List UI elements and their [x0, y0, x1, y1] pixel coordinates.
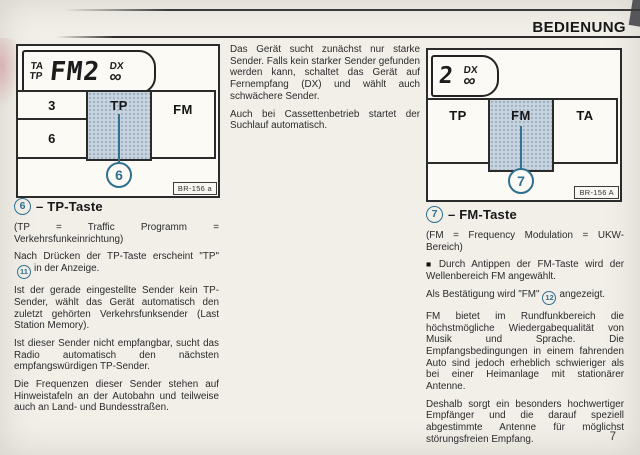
paragraph: Ist dieser Sender nicht empfangbar, such… [14, 338, 219, 373]
tp-button-label: TP [110, 98, 128, 113]
figure-radio-right: 2 DX ∞ TP FM TA 7 BR-156 A [426, 48, 622, 202]
paragraph: Deshalb sorgt ein besonders hochwertiger… [426, 399, 624, 446]
callout-badge-12: 12 [542, 291, 556, 305]
figure-label: BR-156 a [173, 182, 217, 195]
tp-section-heading: 6 – TP-Taste [14, 198, 219, 215]
manual-page: BEDIENUNG TA TP FM2 DX ∞ 3 6 TP FM 6 [0, 0, 640, 455]
paragraph: Als Bestätigung wird "FM"12angezeigt. [426, 289, 624, 305]
fm-section: 7 – FM-Taste (FM = Frequency Modulation … [426, 206, 624, 452]
paragraph: (TP = Traffic Programm = Verkehrsfunkein… [14, 222, 219, 245]
paragraph: Ist der gerade eingestellte Sender kein … [14, 285, 219, 332]
display-dx-indicator: DX ∞ [462, 66, 478, 87]
paragraph: Nach Drücken der TP-Taste erscheint "TP"… [14, 251, 219, 279]
paragraph: ■Durch Antippen der FM-Taste wird der We… [426, 259, 624, 282]
preset-button-6: 6 [16, 118, 88, 159]
fm-button-label: FM [173, 102, 193, 117]
page-header-title: BEDIENUNG [532, 19, 626, 36]
callout-badge-6: 6 [14, 198, 31, 215]
paragraph: Die Frequenzen dieser Sender stehen auf … [14, 379, 219, 414]
display-dx-indicator: DX ∞ [108, 62, 124, 83]
preset-button-6-label: 6 [48, 131, 56, 146]
paragraph: Auch bei Cassettenbetrieb startet der Su… [230, 109, 420, 132]
figure-radio-left: TA TP FM2 DX ∞ 3 6 TP FM 6 BR-156 a [16, 44, 220, 198]
middle-text-column: Das Gerät sucht zunächst nur starke Send… [230, 44, 420, 138]
radio-display-left: TA TP FM2 DX ∞ [22, 50, 156, 94]
paragraph-text: angezeigt. [559, 289, 605, 300]
callout-line [520, 126, 522, 170]
ta-button-label: TA [576, 108, 593, 123]
paragraph: FM bietet im Rundfunkbereich die höchstm… [426, 311, 624, 393]
callout-line [118, 114, 120, 164]
header-rule-top [64, 9, 640, 11]
scan-corner-mark [629, 0, 640, 27]
paragraph-text: in der Anzeige. [34, 263, 99, 274]
square-bullet: ■ [426, 259, 435, 269]
fm-button-label: FM [511, 108, 531, 123]
infinity-symbol: ∞ [109, 71, 122, 83]
header-rule-bottom [56, 36, 640, 38]
callout-circle-6: 6 [106, 162, 132, 188]
display-indicator-stack: TA TP [29, 62, 44, 82]
callout-circle-7: 7 [508, 168, 534, 194]
display-preset-readout: 2 [438, 63, 456, 89]
paragraph-text: Nach Drücken der TP-Taste erscheint "TP" [14, 251, 219, 262]
infinity-symbol: ∞ [463, 75, 476, 87]
radio-display-right: 2 DX ∞ [431, 55, 499, 97]
paragraph: (FM = Frequency Modulation = UKW-Bereich… [426, 230, 624, 253]
preset-button-3: 3 [16, 90, 88, 120]
indicator-tp: TP [29, 72, 43, 82]
section-title: – FM-Taste [448, 209, 517, 221]
figure-label: BR-156 A [574, 186, 619, 199]
callout-badge-11: 11 [17, 265, 31, 279]
section-title: – TP-Taste [36, 201, 103, 213]
page-number: 7 [610, 431, 616, 443]
display-band-readout: FM2 [48, 57, 101, 87]
fm-button: FM [150, 90, 216, 159]
paragraph-text: Durch Antippen der FM-Taste wird der Wel… [426, 259, 624, 282]
callout-badge-7: 7 [426, 206, 443, 223]
tp-button-label: TP [449, 108, 467, 123]
tp-button: TP [426, 98, 490, 164]
paragraph: Das Gerät sucht zunächst nur starke Send… [230, 44, 420, 103]
tp-section: 6 – TP-Taste (TP = Traffic Programm = Ve… [14, 198, 219, 420]
preset-button-3-label: 3 [48, 98, 56, 113]
fm-section-heading: 7 – FM-Taste [426, 206, 624, 223]
ta-button: TA [552, 98, 618, 164]
paragraph-text: Als Bestätigung wird "FM" [426, 289, 539, 300]
